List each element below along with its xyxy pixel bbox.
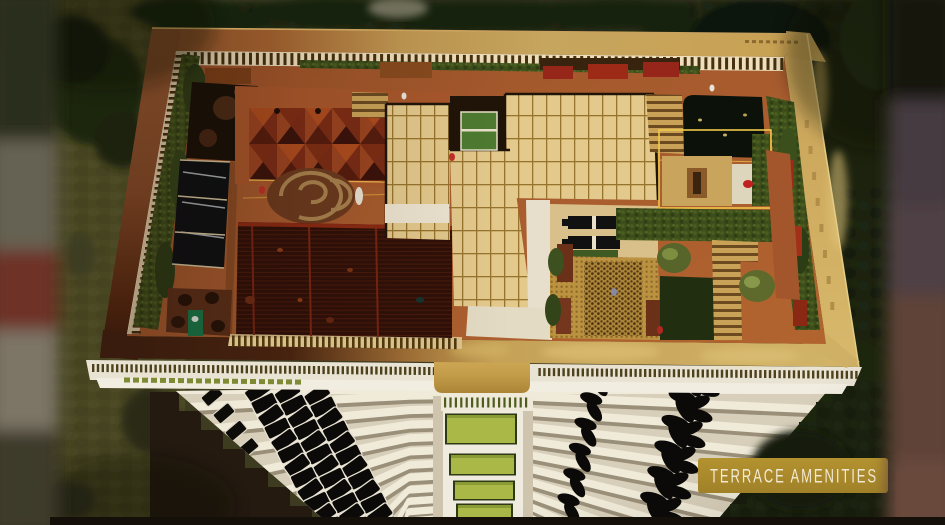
svg-text:TERRACE AMENITIES: TERRACE AMENITIES	[710, 466, 878, 488]
